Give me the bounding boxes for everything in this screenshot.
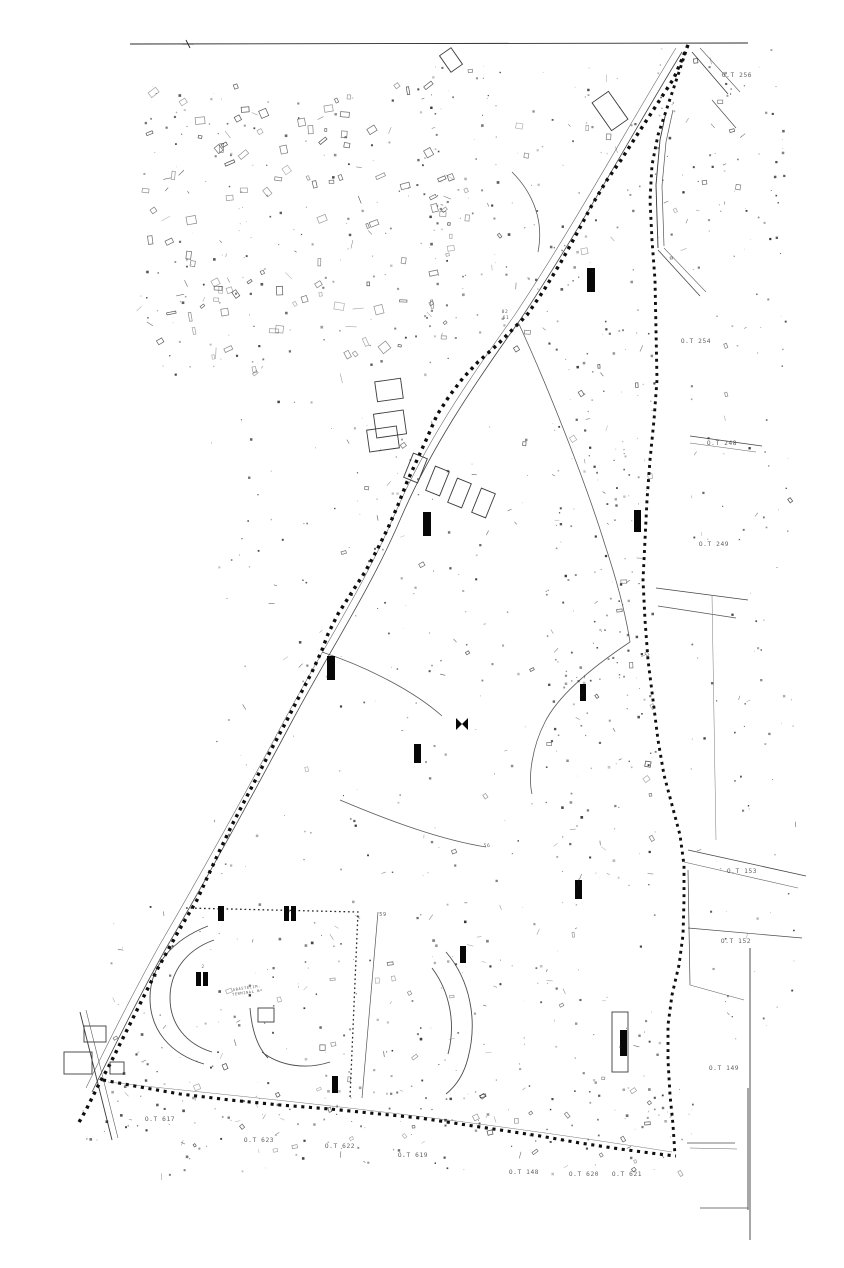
noise-structure: [483, 793, 488, 799]
noise-speck: [257, 781, 258, 782]
noise-speck: [367, 854, 369, 856]
noise-speck: [305, 1058, 308, 1061]
noise-speck: [639, 854, 640, 855]
noise-speck: [598, 1095, 600, 1097]
noise-speck: [618, 877, 620, 879]
noise-speck: [778, 509, 779, 510]
parcel-label-ot-254: O.T 254: [681, 338, 711, 345]
noise-speck: [788, 458, 789, 459]
noise-speck: [349, 547, 350, 548]
noise-speck: [782, 130, 785, 133]
noise-speck: [373, 1069, 375, 1071]
noise-structure: [306, 176, 310, 181]
noise-speck: [782, 139, 783, 140]
noise-speck: [156, 1104, 159, 1107]
noise-speck: [350, 1097, 351, 1098]
noise-speck: [625, 558, 626, 559]
noise-speck: [656, 1054, 658, 1056]
noise-speck: [431, 665, 433, 667]
stadium-arc: [262, 1052, 330, 1066]
noise-speck: [712, 166, 714, 168]
noise-structure: [513, 346, 519, 352]
noise-speck: [598, 480, 599, 481]
noise-speck: [617, 662, 618, 663]
noise-structure: [305, 767, 309, 772]
street-249-fork-1: [656, 588, 748, 600]
noise-speck: [222, 255, 223, 256]
noise-speck: [465, 611, 466, 612]
noise-stroke: [283, 657, 288, 660]
noise-structure: [344, 143, 350, 148]
building-bar-symbol: [203, 972, 208, 986]
noise-stroke: [576, 717, 580, 719]
noise-speck: [416, 917, 418, 919]
noise-speck: [708, 437, 710, 439]
noise-speck: [479, 1123, 481, 1125]
noise-structure: [678, 1170, 683, 1176]
noise-speck: [389, 1108, 391, 1110]
noise-speck: [573, 611, 574, 612]
noise-speck: [359, 1087, 362, 1090]
noise-structure: [331, 1042, 336, 1046]
noise-speck: [447, 470, 449, 472]
noise-structure: [629, 662, 633, 668]
noise-structure: [630, 1088, 637, 1094]
building-outline: [448, 478, 472, 508]
noise-speck: [577, 680, 579, 682]
noise-speck: [303, 523, 304, 524]
noise-speck: [567, 579, 569, 581]
noise-structure: [412, 1054, 418, 1060]
noise-speck: [488, 95, 489, 96]
noise-structure: [301, 295, 308, 302]
noise-stroke: [601, 846, 606, 850]
noise-speck: [186, 1156, 189, 1159]
noise-speck: [769, 238, 771, 240]
noise-speck: [143, 1012, 144, 1013]
noise-speck: [415, 335, 417, 337]
noise-speck: [658, 237, 659, 238]
noise-speck: [608, 766, 611, 769]
noise-speck: [307, 684, 308, 685]
noise-stroke: [563, 988, 566, 993]
noise-speck: [125, 1126, 127, 1128]
noise-speck: [560, 523, 562, 525]
noise-speck: [518, 840, 519, 841]
noise-speck: [524, 227, 525, 228]
noise-speck: [163, 366, 164, 367]
noise-structure: [468, 69, 473, 72]
noise-speck: [552, 119, 554, 121]
noise-speck: [432, 76, 434, 78]
noise-speck: [691, 1133, 692, 1134]
noise-speck: [763, 620, 764, 621]
noise-stroke: [546, 969, 547, 972]
noise-speck: [236, 355, 238, 357]
noise-stroke: [216, 348, 217, 359]
noise-speck: [489, 426, 490, 427]
noise-speck: [410, 459, 412, 461]
noise-speck: [215, 1108, 216, 1109]
noise-speck: [210, 98, 212, 100]
noise-speck: [730, 93, 731, 94]
noise-speck: [744, 703, 745, 704]
noise-speck: [746, 210, 748, 212]
noise-speck: [434, 335, 436, 337]
noise-speck: [391, 1075, 393, 1077]
noise-speck: [595, 1081, 597, 1083]
noise-stroke: [226, 254, 227, 257]
noise-stroke: [277, 1132, 280, 1134]
noise-speck: [710, 911, 712, 913]
noise-speck: [587, 713, 588, 714]
noise-speck: [331, 428, 332, 429]
noise-speck: [435, 67, 436, 68]
noise-speck: [519, 1063, 520, 1064]
noise-speck: [295, 1154, 297, 1156]
noise-structure: [240, 1124, 245, 1129]
noise-speck: [259, 1098, 260, 1099]
noise-speck: [546, 594, 548, 596]
noise-stroke: [696, 210, 700, 211]
noise-speck: [445, 753, 447, 755]
noise-speck: [114, 923, 115, 924]
noise-speck: [651, 613, 654, 616]
noise-speck: [441, 109, 442, 110]
noise-speck: [408, 196, 409, 197]
noise-stroke: [441, 205, 444, 206]
noise-speck: [447, 904, 449, 906]
noise-structure: [523, 442, 527, 446]
noise-speck: [592, 371, 593, 372]
noise-speck: [524, 1037, 525, 1038]
noise-speck: [377, 499, 378, 500]
noise-speck: [667, 156, 668, 157]
noise-speck: [674, 111, 676, 113]
noise-speck: [143, 1062, 144, 1063]
noise-speck: [585, 235, 587, 237]
noise-structure: [645, 652, 649, 657]
noise-speck: [766, 527, 768, 529]
parcel-label-ot-620: O.T 620: [569, 1171, 599, 1178]
noise-speck: [228, 335, 229, 336]
noise-speck: [540, 965, 543, 968]
noise-speck: [382, 549, 384, 551]
noise-speck: [377, 1019, 379, 1021]
noise-speck: [575, 887, 577, 889]
noise-speck: [607, 153, 608, 154]
noise-speck: [655, 174, 656, 175]
noise-speck: [368, 560, 370, 562]
noise-speck: [534, 224, 535, 225]
right-road-bend-1: [658, 250, 700, 296]
noise-speck: [637, 716, 640, 719]
noise-speck: [228, 834, 230, 836]
noise-speck: [305, 944, 308, 947]
noise-structure: [424, 148, 434, 158]
noise-speck: [491, 663, 493, 665]
noise-speck: [106, 1120, 109, 1123]
noise-speck: [776, 195, 778, 197]
noise-structure: [329, 180, 334, 183]
noise-speck: [302, 580, 303, 581]
noise-speck: [504, 820, 505, 821]
noise-stroke: [444, 196, 451, 199]
noise-speck: [289, 1109, 290, 1110]
noise-speck: [775, 86, 776, 87]
parcel-label-ot-249: O.T 249: [699, 541, 729, 548]
noise-speck: [531, 803, 532, 804]
noise-speck: [435, 944, 438, 947]
noise-speck: [574, 1090, 576, 1092]
diagonal-road-west-2: [86, 48, 676, 1088]
noise-speck: [332, 176, 334, 178]
noise-structure: [581, 248, 588, 255]
noise-speck: [158, 272, 159, 273]
noise-speck: [219, 302, 221, 304]
noise-speck: [474, 139, 475, 140]
noise-speck: [771, 49, 773, 51]
noise-speck: [671, 234, 673, 236]
noise-speck: [506, 266, 507, 267]
noise-speck: [392, 492, 394, 494]
noise-speck: [618, 807, 619, 808]
noise-structure: [497, 233, 502, 238]
noise-structure: [529, 1111, 533, 1115]
noise-stroke: [727, 1012, 729, 1015]
noise-speck: [491, 205, 493, 207]
noise-speck: [434, 230, 435, 231]
noise-speck: [487, 98, 488, 99]
noise-speck: [615, 449, 616, 450]
noise-structure: [349, 1137, 353, 1141]
noise-speck: [89, 1138, 92, 1141]
street-152-vert: [688, 870, 690, 985]
building-outline: [472, 488, 496, 518]
noise-speck: [340, 943, 341, 944]
noise-speck: [556, 988, 558, 990]
noise-structure: [431, 203, 439, 212]
noise-speck: [416, 184, 418, 186]
noise-speck: [277, 1104, 279, 1106]
noise-speck: [566, 760, 568, 762]
noise-speck: [630, 281, 633, 284]
noise-speck: [411, 1134, 412, 1135]
noise-speck: [424, 373, 427, 376]
noise-speck: [436, 134, 438, 136]
noise-speck: [458, 189, 460, 191]
noise-speck: [496, 137, 497, 138]
noise-speck: [230, 864, 232, 866]
noise-structure: [465, 215, 470, 221]
noise-speck: [181, 134, 182, 135]
noise-speck: [500, 72, 501, 73]
noise-structure: [193, 1144, 196, 1147]
noise-speck: [535, 1140, 536, 1141]
building-outlines: [64, 48, 628, 1074]
noise-structure: [564, 1112, 570, 1118]
noise-stroke: [125, 1092, 128, 1096]
noise-speck: [417, 88, 419, 90]
noise-speck: [367, 1162, 369, 1164]
noise-speck: [481, 273, 483, 275]
noise-speck: [475, 729, 476, 730]
noise-speck: [184, 109, 186, 111]
noise-speck: [614, 520, 615, 521]
noise-speck: [726, 911, 727, 912]
noise-speck: [258, 345, 260, 347]
noise-speck: [374, 548, 376, 550]
noise-speck: [628, 1087, 630, 1089]
noise-speck: [347, 218, 349, 220]
topright-diag-3: [712, 100, 736, 128]
noise-speck: [354, 427, 356, 429]
noise-speck: [482, 115, 483, 116]
noise-speck: [364, 1127, 365, 1128]
noise-stroke: [318, 117, 324, 120]
noise-speck: [308, 968, 309, 969]
noise-structure: [670, 257, 672, 259]
diagonal-road-west-1: [92, 52, 682, 1092]
noise-speck: [221, 359, 222, 360]
noise-speck: [578, 277, 579, 278]
noise-structure: [282, 165, 291, 174]
noise-stroke: [607, 873, 610, 874]
noise-structure: [252, 371, 258, 376]
noise-speck: [588, 411, 589, 412]
map-top-border-line: [130, 43, 748, 44]
noise-structure: [212, 355, 215, 360]
noise-structure: [645, 1122, 651, 1125]
noise-speck: [486, 1117, 487, 1118]
noise-speck: [785, 321, 787, 323]
noise-speck: [650, 401, 651, 402]
parcel-label-ot-617: O.T 617: [145, 1116, 175, 1123]
road-network: [80, 48, 806, 1240]
noise-speck: [631, 520, 632, 521]
noise-structure: [222, 1064, 228, 1071]
noise-speck: [441, 181, 442, 182]
building-bar-symbols: [196, 268, 641, 1093]
noise-speck: [617, 78, 618, 79]
noise-structure: [643, 775, 650, 782]
noise-speck: [386, 1051, 387, 1052]
noise-stroke: [368, 230, 372, 234]
noise-speck: [104, 1131, 105, 1132]
noise-speck: [172, 945, 174, 947]
noise-speck: [418, 494, 419, 495]
noise-speck: [157, 1071, 158, 1072]
noise-speck: [234, 1016, 236, 1018]
noise-structure: [465, 651, 469, 655]
noise-speck: [417, 478, 419, 480]
noise-speck: [480, 696, 481, 697]
noise-speck: [550, 246, 553, 249]
noise-speck: [573, 508, 574, 509]
noise-speck: [775, 854, 776, 855]
noise-speck: [187, 126, 188, 127]
noise-speck: [673, 102, 674, 103]
noise-speck: [357, 789, 358, 790]
noise-speck: [341, 656, 342, 657]
noise-stroke: [586, 418, 590, 419]
noise-speck: [720, 211, 721, 212]
noise-speck: [551, 1098, 553, 1100]
noise-structure: [233, 84, 238, 89]
noise-speck: [557, 951, 558, 952]
noise-speck: [615, 498, 617, 500]
noise-speck: [464, 178, 467, 181]
noise-structure: [406, 87, 410, 95]
noise-structure: [649, 835, 654, 841]
noise-speck: [179, 341, 181, 343]
noise-speck: [400, 794, 401, 795]
noise-speck: [192, 1097, 195, 1100]
noise-speck: [286, 1049, 287, 1050]
noise-speck: [748, 805, 749, 806]
stadium-track-arcs: [150, 926, 472, 1094]
noise-speck: [554, 247, 555, 248]
noise-speck: [210, 1067, 212, 1069]
noise-speck: [325, 1075, 327, 1077]
building-bar-symbol: [580, 684, 586, 701]
noise-stroke: [661, 48, 662, 50]
noise-speck: [592, 270, 594, 272]
noise-speck: [324, 155, 325, 156]
parcel-label-ot-619: O.T 619: [398, 1152, 428, 1159]
right-road-bend-2: [664, 248, 706, 292]
building-outline: [373, 410, 406, 438]
noise-stroke: [319, 630, 322, 632]
noise-speck: [781, 316, 782, 317]
noise-speck: [436, 222, 438, 224]
noise-speck: [141, 1033, 144, 1036]
noise-speck: [312, 243, 314, 245]
noise-speck: [209, 123, 210, 124]
noise-speck: [297, 1123, 299, 1125]
noise-speck: [756, 917, 758, 919]
noise-speck: [259, 903, 262, 906]
noise-speck: [527, 475, 528, 476]
noise-stroke: [187, 191, 189, 193]
noise-speck: [430, 243, 433, 246]
noise-speck: [760, 679, 762, 681]
noise-speck: [776, 237, 778, 239]
noise-structure: [298, 118, 306, 126]
noise-speck: [352, 901, 355, 904]
noise-structure: [190, 261, 195, 267]
noise-structure: [315, 281, 323, 288]
noise-speck: [463, 1169, 464, 1170]
noise-speck: [425, 761, 427, 763]
noise-speck: [483, 78, 484, 79]
noise-structure: [221, 142, 227, 147]
noise-speck: [465, 275, 466, 276]
noise-speck: [449, 567, 451, 569]
noise-speck: [626, 1028, 627, 1029]
topright-diag-2: [700, 48, 740, 92]
noise-speck: [338, 961, 340, 963]
noise-speck: [503, 324, 505, 326]
noise-speck: [594, 572, 595, 573]
noise-stroke: [487, 203, 488, 207]
noise-structure: [438, 176, 446, 182]
noise-speck: [334, 113, 337, 116]
noise-structure: [317, 214, 327, 223]
noise-speck: [648, 1088, 651, 1091]
noise-speck: [245, 866, 246, 867]
noise-stroke: [640, 345, 643, 351]
